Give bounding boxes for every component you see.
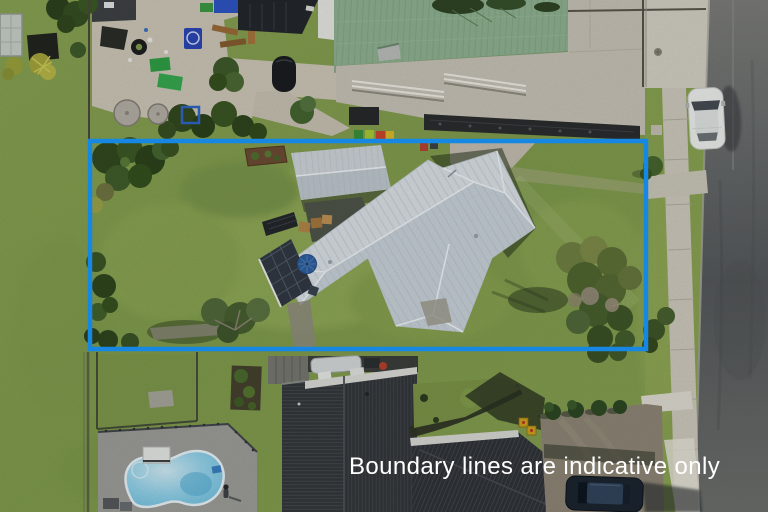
caption-text: Boundary lines are indicative only bbox=[349, 453, 761, 481]
aerial-photo: Boundary lines are indicative only bbox=[0, 0, 768, 512]
photo-grain bbox=[0, 0, 768, 512]
aerial-photo-canvas bbox=[0, 0, 768, 512]
